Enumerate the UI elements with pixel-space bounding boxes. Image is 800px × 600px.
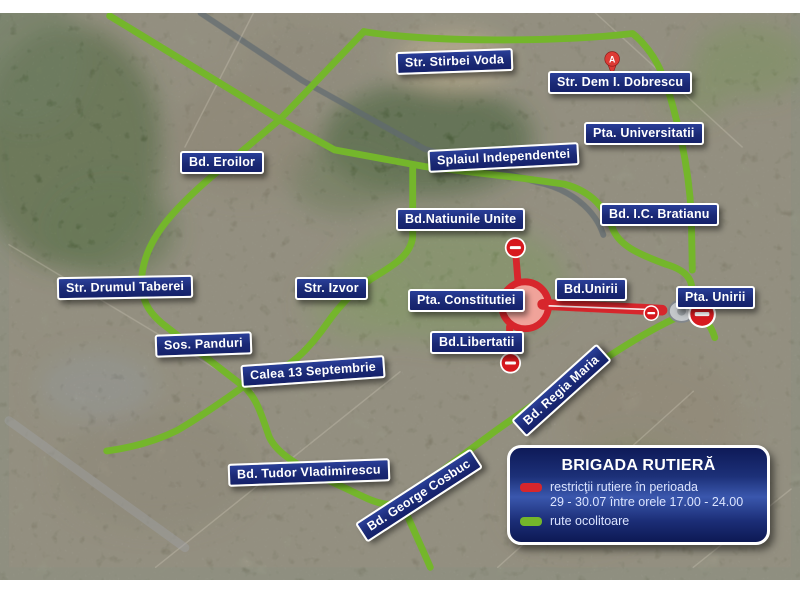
legend-restricted-label: restricţii rutiere în perioada [550, 480, 698, 494]
street-label-bd-unirii: Bd.Unirii [555, 278, 627, 301]
street-label-libertatii: Bd.Libertatii [430, 331, 524, 354]
street-label-stirbei-voda: Str. Stirbei Voda [396, 48, 514, 75]
legend-restricted-period: 29 - 30.07 între orele 17.00 - 24.00 [550, 495, 767, 509]
no-entry-icon-south [500, 352, 521, 373]
street-label-universitatii: Pta. Universitatii [584, 122, 704, 145]
marker-a-label: A [609, 54, 616, 64]
restricted-route-swatch [520, 483, 542, 492]
legend: BRIGADA RUTIERĂ restricţii rutiere în pe… [507, 445, 770, 545]
legend-detour-label: rute ocolitoare [550, 514, 629, 528]
street-label-eroilor: Bd. Eroilor [180, 151, 264, 174]
legend-detour-row: rute ocolitoare [520, 514, 767, 528]
no-entry-icon-unirii-small [643, 305, 659, 321]
map-screenshot: A Str. Stirbei Voda Str. Dem I. Dobrescu… [0, 0, 800, 600]
legend-restricted-row: restricţii rutiere în perioada [520, 480, 767, 494]
street-label-constitutiei: Pta. Constitutiei [408, 289, 525, 312]
legend-title: BRIGADA RUTIERĂ [510, 457, 767, 475]
street-label-panduri: Sos. Panduri [155, 331, 253, 357]
street-label-pta-unirii: Pta. Unirii [676, 286, 755, 309]
detour-route-swatch [520, 517, 542, 526]
street-label-dem-dobrescu: Str. Dem I. Dobrescu [548, 71, 692, 94]
street-label-drumul-taberei: Str. Drumul Taberei [57, 275, 194, 300]
street-label-natiunile-unite: Bd.Natiunile Unite [396, 208, 525, 231]
street-label-ic-bratianu: Bd. I.C. Bratianu [600, 203, 719, 226]
street-label-izvor: Str. Izvor [295, 277, 368, 300]
no-entry-icon-north [505, 237, 526, 258]
